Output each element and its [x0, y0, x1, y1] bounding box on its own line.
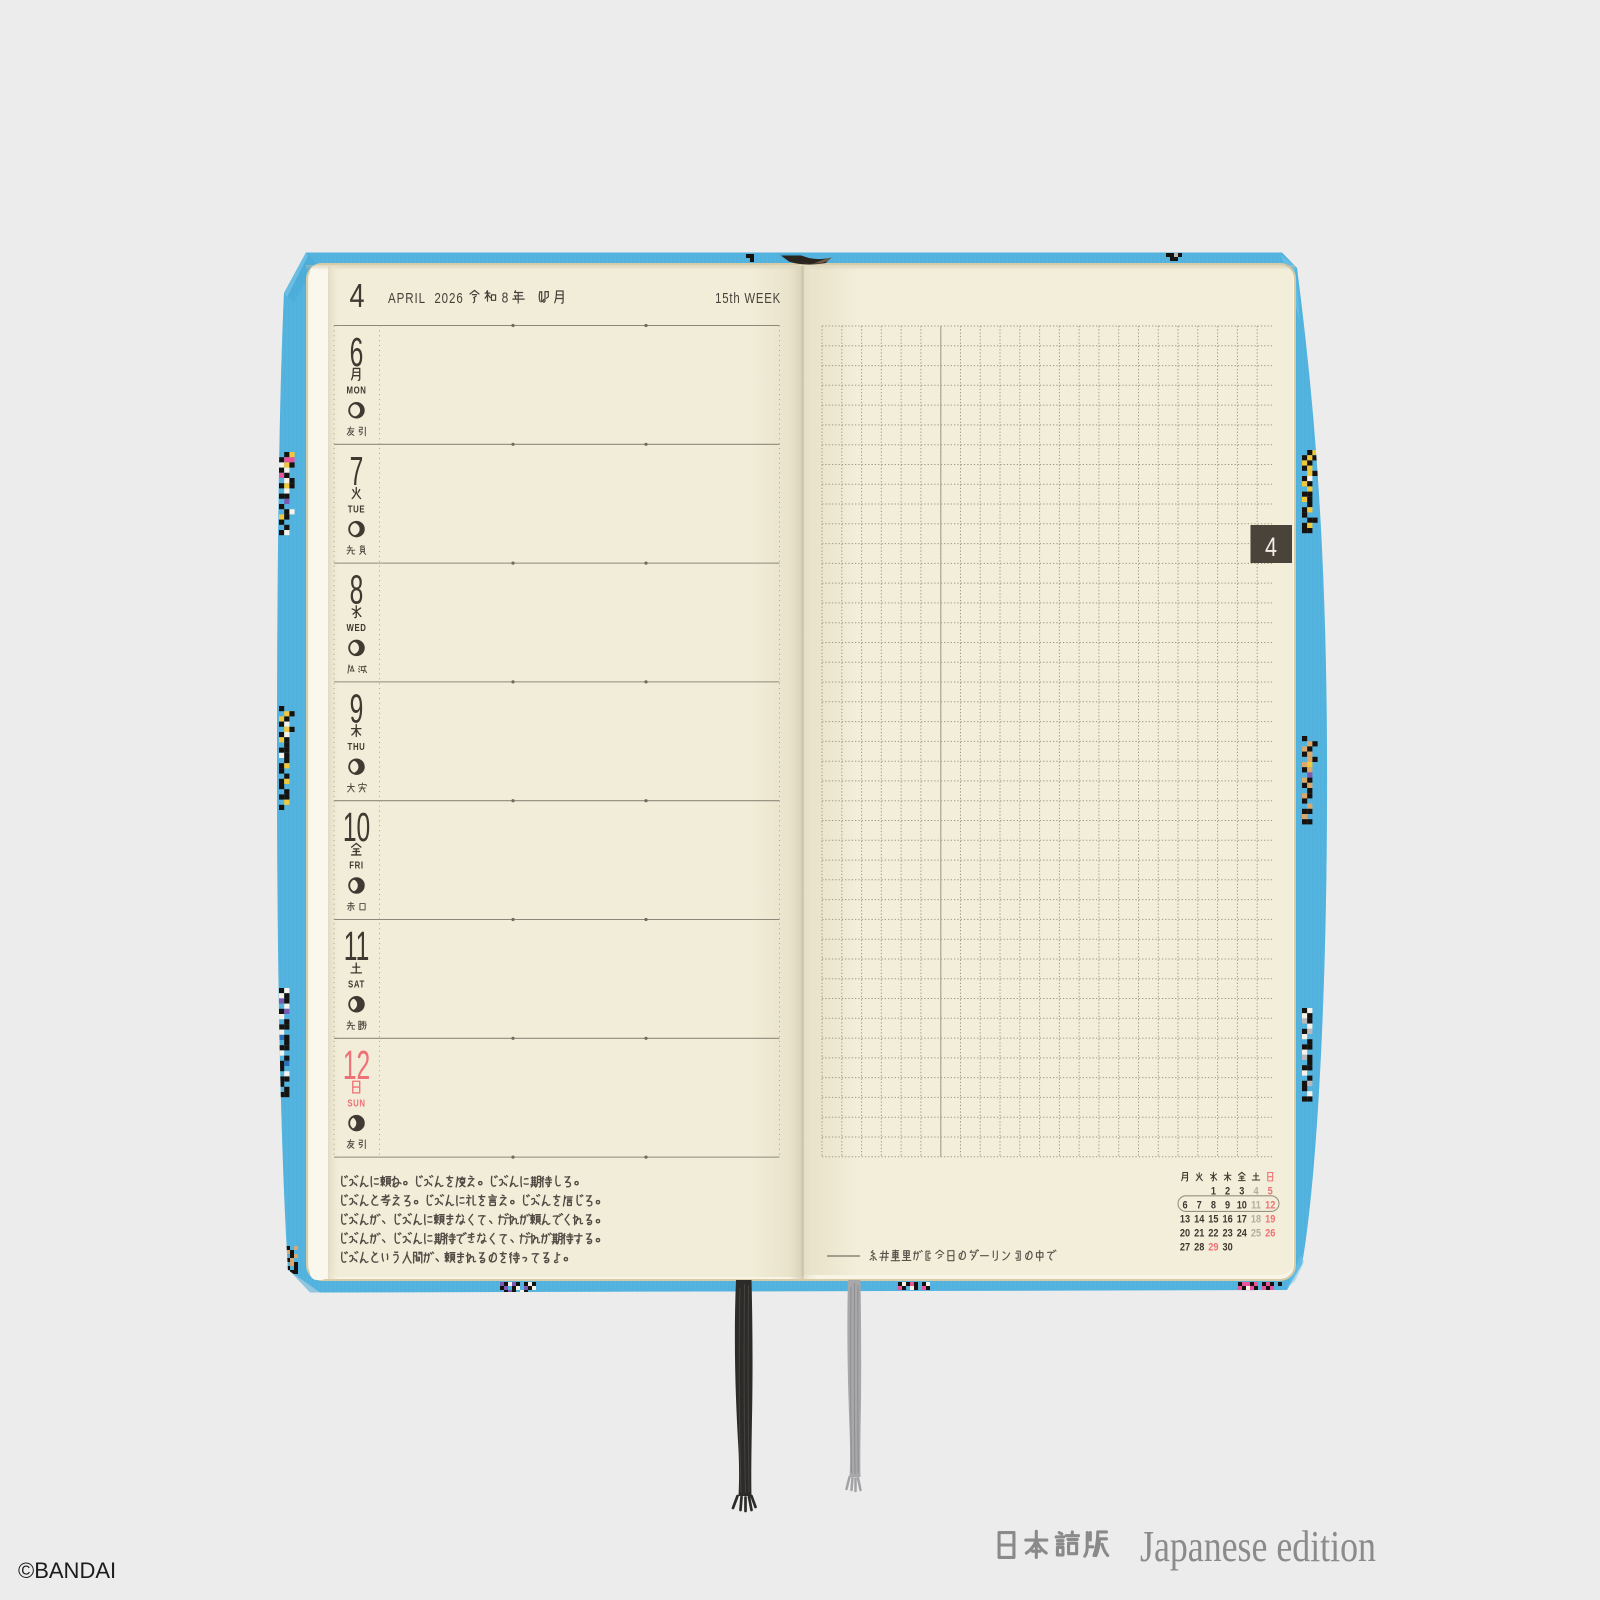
- svg-text:6: 6: [1182, 1200, 1187, 1212]
- svg-text:22: 22: [1208, 1228, 1218, 1240]
- svg-text:SAT: SAT: [348, 979, 365, 990]
- svg-text:19: 19: [1265, 1214, 1275, 1226]
- svg-text:WED: WED: [346, 622, 366, 633]
- svg-text:12: 12: [1265, 1200, 1275, 1212]
- svg-text:MON: MON: [346, 385, 366, 396]
- svg-text:25: 25: [1251, 1228, 1261, 1240]
- svg-text:9: 9: [1225, 1200, 1230, 1212]
- svg-text:20: 20: [1180, 1228, 1190, 1240]
- svg-text:FRI: FRI: [349, 860, 363, 871]
- svg-text:15: 15: [1208, 1214, 1218, 1226]
- svg-text:23: 23: [1222, 1228, 1232, 1240]
- svg-text:10: 10: [1237, 1200, 1247, 1212]
- svg-text:16: 16: [1222, 1214, 1232, 1226]
- svg-text:Japanese edition: Japanese edition: [1140, 1522, 1376, 1571]
- svg-text:8: 8: [1211, 1200, 1216, 1212]
- svg-text:SUN: SUN: [347, 1097, 365, 1108]
- svg-text:17: 17: [1237, 1214, 1247, 1226]
- svg-text:15th WEEK: 15th WEEK: [715, 290, 781, 307]
- svg-text:14: 14: [1194, 1214, 1204, 1226]
- svg-text:24: 24: [1237, 1228, 1247, 1240]
- svg-text:TUE: TUE: [348, 503, 365, 514]
- svg-text:11: 11: [1251, 1200, 1261, 1212]
- svg-text:7: 7: [1197, 1200, 1202, 1212]
- svg-text:18: 18: [1251, 1214, 1261, 1226]
- svg-text:©BANDAI: ©BANDAI: [18, 1558, 116, 1583]
- svg-text:THU: THU: [348, 741, 366, 752]
- svg-text:26: 26: [1265, 1228, 1275, 1240]
- svg-text:8: 8: [502, 289, 509, 306]
- svg-text:21: 21: [1194, 1228, 1204, 1240]
- svg-text:30: 30: [1222, 1242, 1232, 1254]
- svg-text:28: 28: [1194, 1242, 1204, 1254]
- svg-text:4: 4: [349, 279, 364, 315]
- svg-text:APRIL 2026: APRIL 2026: [388, 290, 464, 307]
- svg-text:4: 4: [1265, 533, 1277, 563]
- svg-text:13: 13: [1180, 1214, 1190, 1226]
- svg-text:29: 29: [1208, 1242, 1218, 1254]
- svg-text:27: 27: [1180, 1242, 1190, 1254]
